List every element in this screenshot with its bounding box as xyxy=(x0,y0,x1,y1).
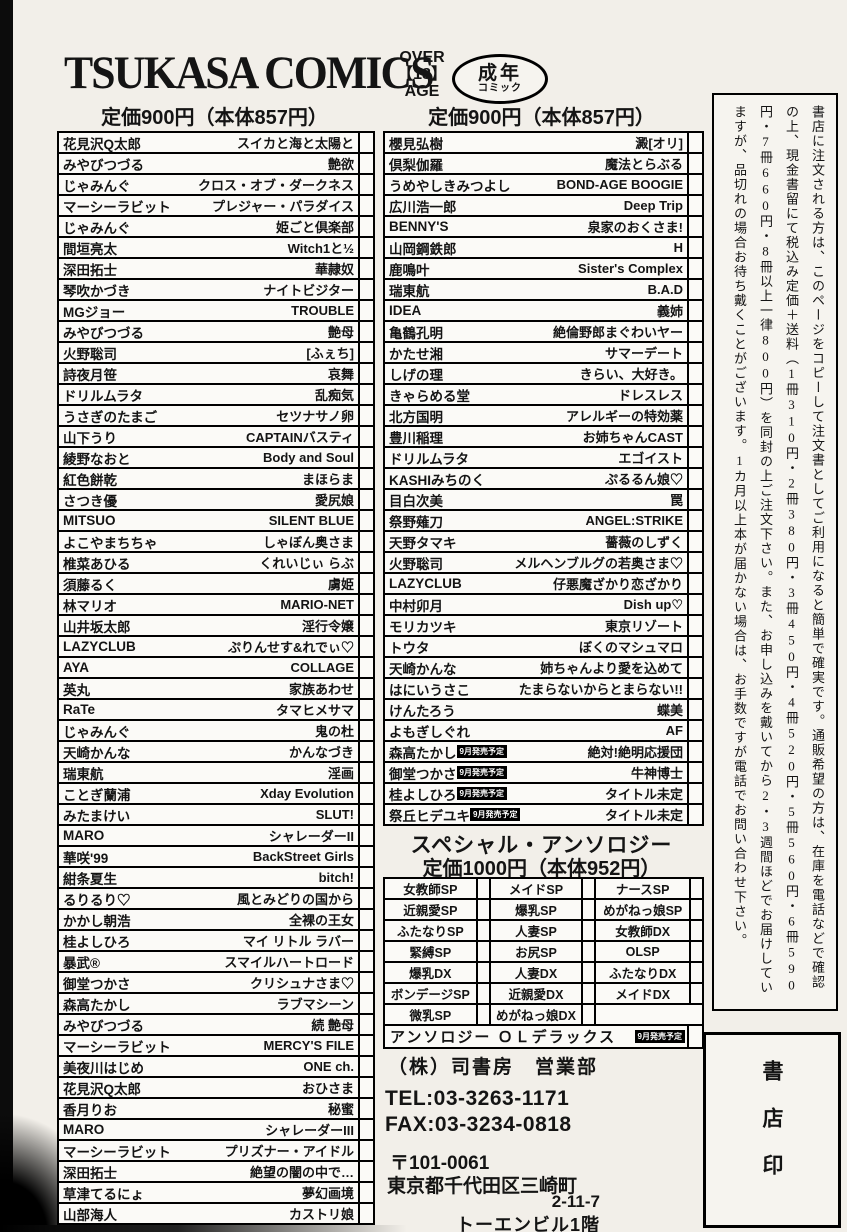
book-title-text: おひさま xyxy=(302,1078,354,1097)
order-checkbox-cell xyxy=(358,1057,373,1076)
book-row: 天崎かんな かんなづき xyxy=(59,742,373,763)
book-title-text: クリシュナさま♡ xyxy=(250,973,354,992)
anthology-cell: 近親愛DX xyxy=(491,984,597,1005)
order-checkbox-cell xyxy=(687,490,702,509)
book-title: きらい、大好き。 xyxy=(443,364,687,383)
book-row: 椎菜あひる くれいじぃ らぶ xyxy=(59,553,373,574)
author-name: マーシーラビット xyxy=(59,1141,171,1161)
book-row: 亀鶴孔明 絶倫野郎まぐわいヤー xyxy=(385,322,702,343)
book-row: 香月りお 秘蜜 xyxy=(59,1099,373,1120)
book-title-text: カストリ娘 xyxy=(289,1204,354,1223)
order-checkbox-cell xyxy=(687,784,702,803)
order-checkbox-cell xyxy=(358,259,373,278)
book-row: じゃみんぐ クロス・オブ・ダークネス xyxy=(59,175,373,196)
book-title-text: シャレーダーII xyxy=(269,826,354,845)
anthology-title-label: 微乳SP xyxy=(385,1005,476,1024)
book-title-text: SLUT! xyxy=(316,807,354,822)
adult-comic-badge-line2: コミック xyxy=(478,83,522,94)
age-restriction-mark: OVER 【18】 AGE xyxy=(396,49,448,100)
book-title-text: 家族あわせ xyxy=(289,679,354,698)
book-row: 北方国明 アレルギーの特効薬 xyxy=(385,406,702,427)
order-checkbox-cell xyxy=(358,1078,373,1097)
order-checkbox-cell xyxy=(358,847,373,866)
book-title: Sister's Complex xyxy=(430,261,688,276)
anthology-title-label: 人妻DX xyxy=(491,963,582,982)
book-title: ナイトビジター xyxy=(131,280,359,299)
book-title-text: 虜姫 xyxy=(328,574,354,593)
book-title-text: MERCY'S FILE xyxy=(264,1038,355,1053)
book-title: まほらま xyxy=(117,469,358,488)
book-title: ONE ch. xyxy=(144,1059,358,1074)
order-checkbox-cell xyxy=(358,679,373,698)
book-title: おひさま xyxy=(141,1078,358,1097)
book-title-text: Dish up♡ xyxy=(624,597,683,613)
author-name: モリカツキ xyxy=(385,616,457,636)
author-name: LAZYCLUB xyxy=(59,639,136,654)
anthology-ol-deluxe-label: アンソロジー ＯＬデラックス xyxy=(385,1026,635,1047)
book-title: BOND-AGE BOOGIE xyxy=(511,177,688,192)
book-row: LAZYCLUB 仔悪魔ざかり恋ざかり xyxy=(385,574,702,595)
book-title: 愛尻娘 xyxy=(117,490,358,509)
order-checkbox-cell xyxy=(358,616,373,635)
left-column-price: 定価900円（本体857円） xyxy=(57,101,372,130)
book-row: 瑞東航 B.A.D xyxy=(385,280,702,301)
order-checkbox-cell xyxy=(687,700,702,719)
author-name: 山岡鋼鉄郎 xyxy=(385,238,457,258)
order-checkbox-cell xyxy=(358,1141,373,1160)
book-row: 御堂つかさ クリシュナさま♡ xyxy=(59,973,373,994)
right-column-price: 定価900円（本体857円） xyxy=(383,101,700,130)
book-title-text: 全裸の王女 xyxy=(289,910,354,929)
author-name: 深田拓士 xyxy=(59,1162,117,1182)
order-checkbox-cell xyxy=(358,1204,373,1223)
book-title: マイ リトル ラバー xyxy=(131,931,359,950)
author-name: IDEA xyxy=(385,303,421,318)
book-title: 泉家のおくさま! xyxy=(448,217,687,236)
author-name: 香月りお xyxy=(59,1099,117,1119)
order-checkbox-cell xyxy=(687,364,702,383)
book-row: 鹿鳴叶 Sister's Complex xyxy=(385,259,702,280)
order-checkbox-cell xyxy=(358,805,373,824)
book-row: 山下うり CAPTAINバスティ xyxy=(59,427,373,448)
order-checkbox-cell xyxy=(358,280,373,299)
book-row: 倶梨伽羅 魔法とらぶる xyxy=(385,154,702,175)
order-checkbox-cell xyxy=(358,364,373,383)
author-name: RaTe xyxy=(59,702,95,717)
book-title-text: メルヘンブルグの若奥さま♡ xyxy=(514,553,683,572)
book-title-text: BackStreet Girls xyxy=(253,849,354,864)
book-title-text: お姉ちゃんCAST xyxy=(583,427,683,446)
author-name: 詩夜月笹 xyxy=(59,364,117,384)
anthology-cell: めがねっ娘DX xyxy=(491,1005,597,1024)
book-row: きゃらめる堂 ドレスレス xyxy=(385,385,702,406)
order-checkbox-cell xyxy=(476,900,489,919)
anthology-cell: 微乳SP xyxy=(385,1005,491,1024)
author-name: みやびつづる xyxy=(59,154,144,174)
author-name: かたせ湘 xyxy=(385,343,443,363)
order-checkbox-cell xyxy=(687,217,702,236)
book-title-text: タマヒメサマ xyxy=(276,700,354,719)
author-name: AYA xyxy=(59,660,89,675)
anthology-title-label: ボンデージSP xyxy=(385,984,476,1003)
order-checkbox-cell xyxy=(687,679,702,698)
anthology-title-label: 女教師SP xyxy=(385,879,476,898)
book-row: 中村卯月 Dish up♡ xyxy=(385,595,702,616)
order-checkbox-cell xyxy=(687,406,702,425)
book-title: Xday Evolution xyxy=(131,786,359,801)
book-title-text: 続 艶母 xyxy=(311,1015,354,1034)
book-row: 詩夜月笹 哀舞 xyxy=(59,364,373,385)
author-name: LAZYCLUB xyxy=(385,576,462,591)
book-title-text: エゴイスト xyxy=(618,448,683,467)
book-title: 9月発売予定 牛神博士 xyxy=(457,763,688,782)
book-row: ドリルムラタ エゴイスト xyxy=(385,448,702,469)
book-list-right: 櫻見弘樹 澱[オリ] 倶梨伽羅 魔法とらぶる うめやしきみつよし BOND-AG… xyxy=(383,131,704,826)
book-title: 淫画 xyxy=(104,763,359,782)
book-row: 瑞東航 淫画 xyxy=(59,763,373,784)
author-name: トウタ xyxy=(385,637,430,657)
book-title: 秘蜜 xyxy=(117,1099,358,1118)
book-title-text: bitch! xyxy=(319,870,354,885)
order-checkbox-cell xyxy=(358,406,373,425)
book-title: 乱痴気 xyxy=(143,385,358,404)
author-name: マーシーラビット xyxy=(59,1036,171,1056)
book-title-text: 夢幻画境 xyxy=(302,1183,354,1202)
order-checkbox-cell xyxy=(689,963,702,982)
book-row: 間垣亮太 Witch1と½ xyxy=(59,238,373,259)
author-name: 紺条夏生 xyxy=(59,868,117,888)
order-checkbox-cell xyxy=(476,984,489,1003)
book-row: 祭野薙刀 ANGEL:STRIKE xyxy=(385,511,702,532)
book-title-text: COLLAGE xyxy=(290,660,354,675)
book-title-text: ラブマシーン xyxy=(277,994,354,1013)
book-title: 澱[オリ] xyxy=(443,133,687,152)
book-title: 淫行令嬢 xyxy=(131,616,359,635)
anthology-cell: メイドSP xyxy=(491,879,597,900)
book-row: AYA COLLAGE xyxy=(59,658,373,679)
book-row: るりるり♡ 風とみどりの国から xyxy=(59,889,373,910)
book-row: 花見沢Q太郎 おひさま xyxy=(59,1078,373,1099)
author-name: 御堂つかさ xyxy=(385,763,457,783)
anthology-cell: 人妻SP xyxy=(491,921,597,942)
book-title-text: Sister's Complex xyxy=(578,261,683,276)
author-name: 祭野薙刀 xyxy=(385,511,443,531)
book-title-text: 澱[オリ] xyxy=(635,133,683,152)
book-title: スマイルハートロード xyxy=(100,952,358,971)
book-row: 山部海人 カストリ娘 xyxy=(59,1204,373,1223)
order-checkbox-cell xyxy=(358,868,373,887)
book-title: メルヘンブルグの若奥さま♡ xyxy=(443,553,687,572)
book-title-text: 東京リゾート xyxy=(605,616,683,635)
order-checkbox-cell xyxy=(358,595,373,614)
book-title-text: プリズナー・アイドル xyxy=(225,1141,354,1160)
publisher-fax: FAX:03-3234-0818 xyxy=(385,1113,572,1137)
author-name: 須藤るく xyxy=(59,574,117,594)
author-name: 火野聡司 xyxy=(385,553,443,573)
author-name: 山下うり xyxy=(59,427,117,447)
book-list-left: 花見沢Q太郎 スイカと海と太陽と みやびつづる 艶欲 じゃみんぐ クロス・オブ・… xyxy=(57,131,375,1225)
order-checkbox-cell xyxy=(358,784,373,803)
book-title: たまらないからとまらない!! xyxy=(470,679,687,698)
bookstore-stamp-label: 書店印 xyxy=(757,1060,787,1201)
author-name: 豊川稲理 xyxy=(385,427,443,447)
book-title: Dish up♡ xyxy=(443,597,687,613)
book-row: 火野聡司 [ふぇち] xyxy=(59,343,373,364)
publisher-address-line3: トーエンビル1階 xyxy=(385,1211,600,1232)
book-title-text: 魔法とらぶる xyxy=(605,154,683,173)
author-name: 草津てるにょ xyxy=(59,1183,144,1203)
author-name: BENNY'S xyxy=(385,219,448,234)
author-name: ことぎ蘭浦 xyxy=(59,784,131,804)
book-title: 義姉 xyxy=(421,301,687,320)
author-name: 鹿鳴叶 xyxy=(385,259,430,279)
order-checkbox-cell xyxy=(687,469,702,488)
book-row: 暴武® スマイルハートロード xyxy=(59,952,373,973)
book-title: TROUBLE xyxy=(125,303,358,318)
book-title: サマーデート xyxy=(443,343,687,362)
anthology-title-label: お尻SP xyxy=(491,942,582,961)
order-checkbox-cell xyxy=(358,385,373,404)
order-checkbox-cell xyxy=(689,984,702,1003)
anthology-cell: メイドDX xyxy=(596,984,702,1005)
author-name: よもぎしぐれ xyxy=(385,721,470,741)
book-title-text: Xday Evolution xyxy=(260,786,354,801)
order-checkbox-cell xyxy=(687,511,702,530)
anthology-ol-deluxe-row: アンソロジー ＯＬデラックス 9月発売予定 xyxy=(383,1026,704,1049)
order-checkbox-cell xyxy=(358,721,373,740)
book-title: ANGEL:STRIKE xyxy=(443,513,687,528)
book-title-text: ANGEL:STRIKE xyxy=(586,513,684,528)
book-title-text: Witch1と½ xyxy=(288,238,354,257)
order-checkbox-cell xyxy=(358,532,373,551)
book-title: 続 艶母 xyxy=(144,1015,358,1034)
author-name: 花見沢Q太郎 xyxy=(59,133,141,153)
order-checkbox-cell xyxy=(581,1005,594,1024)
book-row: よこやまちちゃ しゃぼん奥さま xyxy=(59,532,373,553)
book-row: 草津てるにょ 夢幻画境 xyxy=(59,1183,373,1204)
order-checkbox-cell xyxy=(358,973,373,992)
book-row: しげの理 きらい、大好き。 xyxy=(385,364,702,385)
book-title: 家族あわせ xyxy=(90,679,358,698)
book-title-text: シャレーダーIII xyxy=(265,1120,354,1139)
book-title-text: ナイトビジター xyxy=(263,280,354,299)
order-checkbox-cell xyxy=(358,700,373,719)
book-row: 琴吹かづき ナイトビジター xyxy=(59,280,373,301)
author-name: じゃみんぐ xyxy=(59,721,131,741)
book-row: LAZYCLUB ぷりんせす&れでぃ♡ xyxy=(59,637,373,658)
anthology-title-label: 近親愛DX xyxy=(491,984,582,1003)
anthology-cell: お尻SP xyxy=(491,942,597,963)
book-row: かかし朝浩 全裸の王女 xyxy=(59,910,373,931)
book-row: マーシーラビット MERCY'S FILE xyxy=(59,1036,373,1057)
book-title: アレルギーの特効薬 xyxy=(443,406,687,425)
book-title-text: かんなづき xyxy=(289,742,354,761)
order-checkbox-cell xyxy=(358,553,373,572)
book-title: クリシュナさま♡ xyxy=(131,973,359,992)
book-row: IDEA 義姉 xyxy=(385,301,702,322)
order-checkbox-cell xyxy=(358,238,373,257)
author-name: 目白次美 xyxy=(385,490,443,510)
order-checkbox-cell xyxy=(358,196,373,215)
book-title-text: ONE ch. xyxy=(303,1059,354,1074)
book-title: 虜姫 xyxy=(117,574,358,593)
author-name: さつき優 xyxy=(59,490,117,510)
order-checkbox-cell xyxy=(687,574,702,593)
book-title-text: 風とみどりの国から xyxy=(237,889,354,908)
book-row: 桂よしひろ 9月発売予定 タイトル未定 xyxy=(385,784,702,805)
order-checkbox-cell xyxy=(358,511,373,530)
order-checkbox-cell xyxy=(687,742,702,761)
book-title-text: きらい、大好き。 xyxy=(580,364,683,383)
book-title-text: ぼくのマシュマロ xyxy=(579,637,683,656)
release-badge: 9月発売予定 xyxy=(457,766,507,779)
author-name: 山井坂太郎 xyxy=(59,616,131,636)
book-row: 林マリオ MARIO-NET xyxy=(59,595,373,616)
adult-comic-badge-line1: 成年 xyxy=(478,64,522,83)
book-row: 櫻見弘樹 澱[オリ] xyxy=(385,133,702,154)
book-row: MGジョー TROUBLE xyxy=(59,301,373,322)
book-title: 全裸の王女 xyxy=(131,910,359,929)
anthology-title-label: メイドDX xyxy=(596,984,689,1003)
book-title: 姉ちゃんより愛を込めて xyxy=(457,658,688,677)
book-title-text: アレルギーの特効薬 xyxy=(566,406,683,425)
book-title-text: 牛神博士 xyxy=(631,763,683,782)
release-badge: 9月発売予定 xyxy=(457,787,507,800)
book-title: お姉ちゃんCAST xyxy=(443,427,687,446)
anthology-title-label: 爆乳DX xyxy=(385,963,476,982)
author-name: 花見沢Q太郎 xyxy=(59,1078,141,1098)
book-row: マーシーラビット プリズナー・アイドル xyxy=(59,1141,373,1162)
author-name: 桂よしひろ xyxy=(59,931,131,951)
order-checkbox-cell xyxy=(358,1015,373,1034)
bookstore-stamp-box: 書店印 xyxy=(703,1032,841,1228)
age-restriction-line3: AGE xyxy=(396,83,448,100)
book-row: 華咲'99 BackStreet Girls xyxy=(59,847,373,868)
book-row: 天崎かんな 姉ちゃんより愛を込めて xyxy=(385,658,702,679)
book-row: 御堂つかさ 9月発売予定 牛神博士 xyxy=(385,763,702,784)
order-checkbox-cell xyxy=(581,963,594,982)
book-title: B.A.D xyxy=(430,282,688,297)
book-row: 須藤るく 虜姫 xyxy=(59,574,373,595)
author-name: 琴吹かづき xyxy=(59,280,131,300)
book-title-text: 義姉 xyxy=(657,301,683,320)
author-name: KASHIみちのく xyxy=(385,469,485,489)
book-title: AF xyxy=(470,723,687,738)
age-restriction-line2: 【18】 xyxy=(396,66,448,83)
order-checkbox-cell xyxy=(476,963,489,982)
book-title: Deep Trip xyxy=(457,198,688,213)
anthology-title-label: ふたなりSP xyxy=(385,921,476,940)
author-name: 山部海人 xyxy=(59,1204,117,1224)
order-checkbox-cell xyxy=(581,879,594,898)
anthology-title-label: メイドSP xyxy=(491,879,582,898)
author-name: 綾野なおと xyxy=(59,448,131,468)
book-title-text: 罠 xyxy=(670,490,683,509)
book-row: BENNY'S 泉家のおくさま! xyxy=(385,217,702,238)
order-checkbox-cell xyxy=(358,742,373,761)
order-checkbox-cell xyxy=(687,763,702,782)
book-title: MERCY'S FILE xyxy=(171,1038,358,1053)
book-title: ラブマシーン xyxy=(131,994,359,1013)
author-name: MARO xyxy=(59,828,104,843)
book-title: 絶倫野郎まぐわいヤー xyxy=(443,322,687,341)
mail-order-instructions: 書店に注文される方は、このページをコピーして注文書としてご利用になると簡単で確実… xyxy=(712,93,838,1011)
book-title: 9月発売予定 タイトル未定 xyxy=(470,805,687,824)
book-title: プリズナー・アイドル xyxy=(171,1141,358,1160)
book-title-text: セツナサノ卵 xyxy=(276,406,354,425)
book-title: シャレーダーIII xyxy=(104,1120,358,1139)
book-title-text: タイトル未定 xyxy=(605,805,683,824)
author-name: みやびつづる xyxy=(59,322,144,342)
book-title: セツナサノ卵 xyxy=(157,406,358,425)
author-name: MGジョー xyxy=(59,301,125,321)
book-row: 目白次美 罠 xyxy=(385,490,702,511)
order-checkbox-cell xyxy=(687,238,702,257)
book-title: 東京リゾート xyxy=(457,616,688,635)
book-title-text: ドレスレス xyxy=(618,385,683,404)
author-name: みやびつづる xyxy=(59,1015,144,1035)
anthology-cell: めがねっ娘SP xyxy=(596,900,702,921)
book-title-text: 艶母 xyxy=(328,322,354,341)
anthology-title-label: ナースSP xyxy=(596,879,689,898)
book-title-text: 仔悪魔ざかり恋ざかり xyxy=(553,574,683,593)
book-title-text: 淫行令嬢 xyxy=(302,616,354,635)
order-checkbox-cell xyxy=(687,427,702,446)
book-title-text: 秘蜜 xyxy=(328,1099,354,1118)
anthology-cell xyxy=(596,1005,702,1024)
order-checkbox-cell xyxy=(358,301,373,320)
order-checkbox-cell xyxy=(358,322,373,341)
book-title: [ふぇち] xyxy=(117,343,358,362)
book-row: 紺条夏生 bitch! xyxy=(59,868,373,889)
order-checkbox-cell xyxy=(689,942,702,961)
order-checkbox-cell xyxy=(358,217,373,236)
book-title: くれいじぃ らぶ xyxy=(131,553,359,572)
book-row: 桂よしひろ マイ リトル ラバー xyxy=(59,931,373,952)
book-title: COLLAGE xyxy=(89,660,358,675)
order-checkbox-cell xyxy=(358,931,373,950)
book-title: BackStreet Girls xyxy=(108,849,358,864)
anthology-cell: 爆乳DX xyxy=(385,963,491,984)
order-checkbox-cell xyxy=(358,826,373,845)
anthology-cell: OLSP xyxy=(596,942,702,963)
author-name: ドリルムラタ xyxy=(385,448,469,468)
anthology-cell: 女教師SP xyxy=(385,879,491,900)
book-title-text: 艶欲 xyxy=(328,154,354,173)
order-checkbox-cell xyxy=(689,879,702,898)
author-name: 森高たかし xyxy=(385,742,457,762)
book-title-text: サマーデート xyxy=(605,343,683,362)
book-title: タマヒメサマ xyxy=(95,700,358,719)
book-title: CAPTAINバスティ xyxy=(117,427,358,446)
order-checkbox-cell xyxy=(687,721,702,740)
book-row: ドリルムラタ 乱痴気 xyxy=(59,385,373,406)
book-title-text: 姉ちゃんより愛を込めて xyxy=(540,658,683,677)
book-title: 哀舞 xyxy=(117,364,358,383)
book-title-text: たまらないからとまらない!! xyxy=(519,679,683,698)
book-title-text: 華隷奴 xyxy=(315,259,354,278)
author-name: 亀鶴孔明 xyxy=(385,322,443,342)
author-name: 倶梨伽羅 xyxy=(385,154,443,174)
order-checkbox-cell xyxy=(687,322,702,341)
anthology-cell: 近親愛SP xyxy=(385,900,491,921)
order-checkbox-cell xyxy=(358,490,373,509)
book-title: MARIO-NET xyxy=(117,597,358,612)
order-checkbox-cell xyxy=(358,574,373,593)
order-checkbox-cell xyxy=(476,879,489,898)
author-name: 紅色餅乾 xyxy=(59,469,117,489)
order-checkbox-cell xyxy=(358,889,373,908)
